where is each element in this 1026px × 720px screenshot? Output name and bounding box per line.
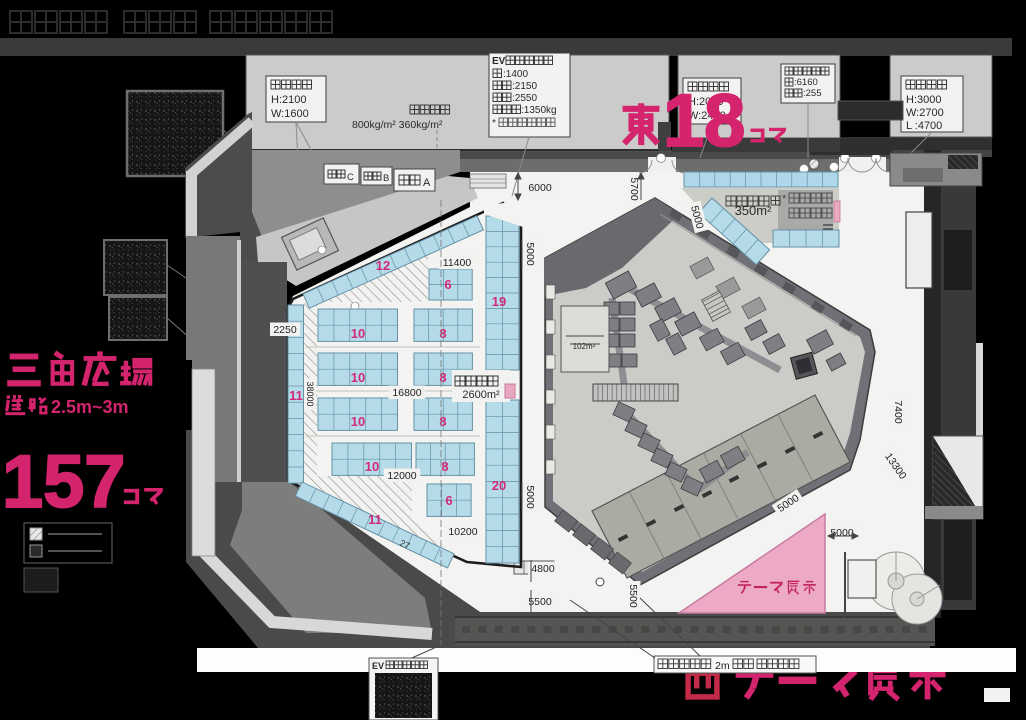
svg-text:5000: 5000	[524, 485, 536, 509]
svg-text:*: *	[492, 118, 496, 129]
svg-text:4800: 4800	[531, 563, 555, 575]
svg-text:*: *	[782, 193, 787, 205]
svg-text:B: B	[383, 173, 389, 184]
svg-text:12000: 12000	[387, 470, 416, 482]
svg-text:11: 11	[368, 512, 382, 527]
svg-text:5500: 5500	[528, 596, 552, 608]
svg-text:H:3000: H:3000	[906, 94, 941, 106]
svg-text:C: C	[347, 172, 354, 183]
svg-text:12: 12	[376, 258, 390, 273]
svg-text:157: 157	[2, 440, 125, 523]
svg-text:10: 10	[365, 459, 379, 474]
svg-text:11400: 11400	[443, 257, 472, 269]
svg-text:6000: 6000	[528, 182, 552, 194]
svg-text::1400: :1400	[503, 69, 528, 80]
svg-text:8: 8	[441, 459, 448, 474]
svg-text::6160: :6160	[794, 77, 818, 88]
svg-text:W:2700: W:2700	[906, 107, 944, 119]
svg-text:L :4700: L :4700	[906, 120, 942, 132]
svg-text:10: 10	[351, 414, 365, 429]
svg-text:W:1600: W:1600	[271, 108, 309, 120]
svg-text:EV: EV	[372, 661, 384, 671]
svg-text:2600m²: 2600m²	[462, 389, 500, 401]
svg-text:6: 6	[444, 277, 451, 292]
svg-text:8: 8	[439, 370, 446, 385]
svg-text:2.5m~3m: 2.5m~3m	[51, 397, 129, 417]
svg-text:10: 10	[351, 370, 365, 385]
svg-text:6: 6	[445, 493, 452, 508]
svg-text:11: 11	[289, 388, 303, 403]
svg-text:20: 20	[492, 478, 506, 493]
svg-text::1350kg: :1350kg	[521, 105, 557, 116]
svg-text:102m²: 102m²	[573, 342, 596, 351]
svg-text:10: 10	[351, 326, 365, 341]
svg-text:350m²: 350m²	[735, 203, 773, 218]
svg-text::2550: :2550	[512, 93, 537, 104]
svg-text:5700: 5700	[628, 177, 640, 201]
svg-text:38000: 38000	[305, 381, 315, 406]
svg-text:2250: 2250	[273, 324, 297, 336]
svg-text:A: A	[423, 177, 431, 189]
svg-text:16800: 16800	[392, 387, 421, 399]
svg-text:19: 19	[492, 294, 506, 309]
svg-text:EV: EV	[492, 56, 506, 67]
svg-text:8: 8	[439, 414, 446, 429]
svg-text:8: 8	[439, 326, 446, 341]
svg-text:5000: 5000	[524, 242, 536, 266]
svg-text:7400: 7400	[892, 400, 904, 424]
svg-text:H:2100: H:2100	[271, 94, 306, 106]
svg-text:2m: 2m	[715, 660, 730, 672]
svg-text:10200: 10200	[448, 526, 477, 538]
svg-text::2150: :2150	[512, 81, 537, 92]
svg-text::255: :255	[803, 88, 822, 99]
svg-text:5500: 5500	[627, 584, 639, 608]
svg-text:18: 18	[663, 79, 745, 162]
svg-text:800kg/m² 360kg/m²: 800kg/m² 360kg/m²	[352, 119, 443, 131]
